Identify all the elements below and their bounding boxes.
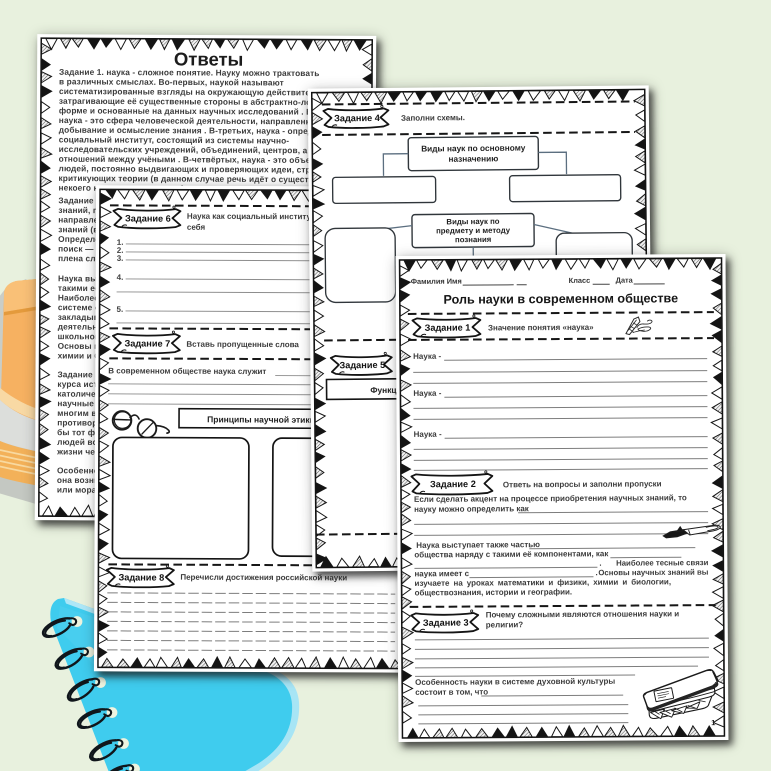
svg-text:3.: 3. [117, 254, 124, 263]
svg-text:В современном обществе наука с: В современном обществе наука служит [108, 366, 266, 376]
svg-text:4.: 4. [117, 273, 124, 282]
svg-text:Задание 5: Задание 5 [339, 360, 385, 370]
svg-text:Перечисли достижения российско: Перечисли достижения российской науки [180, 573, 347, 583]
svg-text:изучаете на уроках математики: изучаете на уроках математики и физики, … [414, 577, 671, 588]
svg-text:Задание 6: Задание 6 [125, 213, 171, 223]
svg-text:Задание 3: Задание 3 [423, 618, 469, 628]
svg-text:назначению: назначению [448, 153, 498, 163]
svg-text:Задание 1: Задание 1 [425, 323, 471, 333]
svg-text:Виды наук по основному: Виды наук по основному [421, 143, 526, 154]
svg-text:Почему сложными являются отнош: Почему сложными являются отношения науки… [486, 609, 680, 619]
svg-text:Заполни схемы.: Заполни схемы. [401, 113, 465, 123]
svg-text:предмету и методу: предмету и методу [436, 226, 511, 236]
svg-text:общества наряду с такими её ко: общества наряду с такими её компонентами… [414, 549, 609, 559]
svg-text:Ответь на вопросы и заполни пр: Ответь на вопросы и заполни пропуски [503, 479, 662, 489]
svg-text:состоит в том, что: состоит в том, что [415, 687, 488, 696]
svg-text:познания: познания [455, 235, 491, 244]
svg-text:обществознания, истории и геог: обществознания, истории и географии. [415, 587, 573, 597]
svg-text:Наука -: Наука - [413, 352, 441, 361]
svg-text:Вставь пропущенные слова: Вставь пропущенные слова [186, 340, 299, 349]
svg-text:Дата: Дата [616, 276, 634, 285]
svg-text:Класс: Класс [569, 276, 591, 285]
svg-text:1: 1 [711, 718, 715, 727]
svg-text:Наука выступает также частью: Наука выступает также частью [416, 540, 540, 550]
svg-text:Задание 2: Задание 2 [430, 479, 476, 489]
svg-text:Роль науки в современном общес: Роль науки в современном обществе [443, 291, 678, 306]
svg-text:Задание 4: Задание 4 [334, 113, 381, 123]
svg-text:5.: 5. [117, 305, 124, 314]
svg-text:Основы научных знаний вы: Основы научных знаний вы [598, 568, 708, 578]
svg-text:науку можно определить как: науку можно определить как [414, 504, 530, 514]
svg-text:Особенность науки в системе ду: Особенность науки в системе духовной кул… [415, 677, 615, 687]
svg-text:Фамилия Имя: Фамилия Имя [411, 277, 462, 286]
svg-text:Наука -: Наука - [413, 389, 441, 398]
svg-text:Если сделать акцент на процесс: Если сделать акцент на процессе приобрет… [414, 493, 687, 504]
svg-text:Принципы научной этики: Принципы научной этики [207, 414, 315, 424]
svg-text:Задание 7: Задание 7 [124, 338, 170, 348]
svg-text:религии?: религии? [486, 620, 524, 629]
svg-text:Наиболее тесные связи: Наиболее тесные связи [616, 558, 709, 568]
svg-text:.: . [599, 559, 601, 568]
svg-text:наука имеет с: наука имеет с [414, 569, 469, 578]
svg-text:Значение понятия «наука»: Значение понятия «наука» [488, 323, 594, 333]
svg-text:Задание 8: Задание 8 [118, 572, 164, 582]
svg-text:себя: себя [187, 223, 206, 232]
svg-text:Наука -: Наука - [414, 430, 442, 439]
